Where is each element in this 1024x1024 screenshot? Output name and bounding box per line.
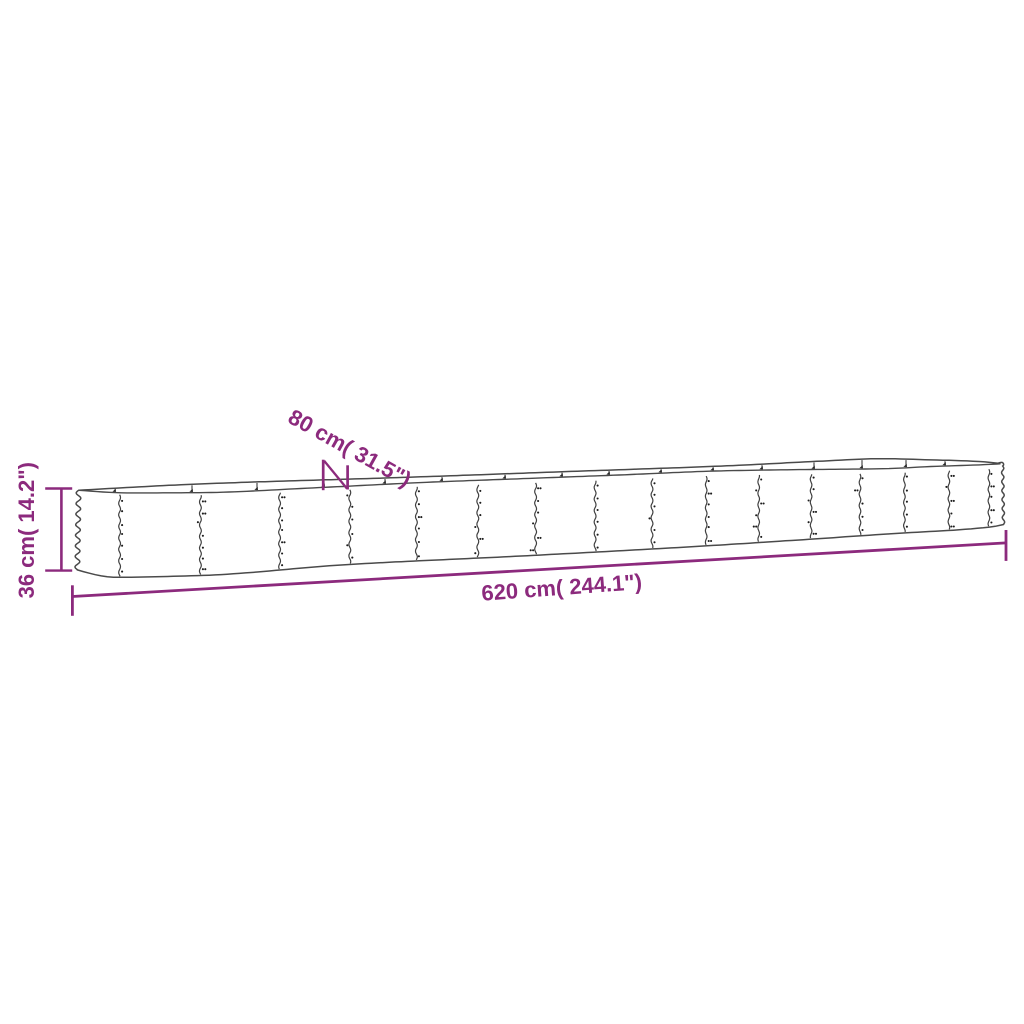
- svg-text:620 cm( 244.1"): 620 cm( 244.1"): [481, 569, 643, 606]
- svg-text:36 cm( 14.2"): 36 cm( 14.2"): [14, 462, 39, 598]
